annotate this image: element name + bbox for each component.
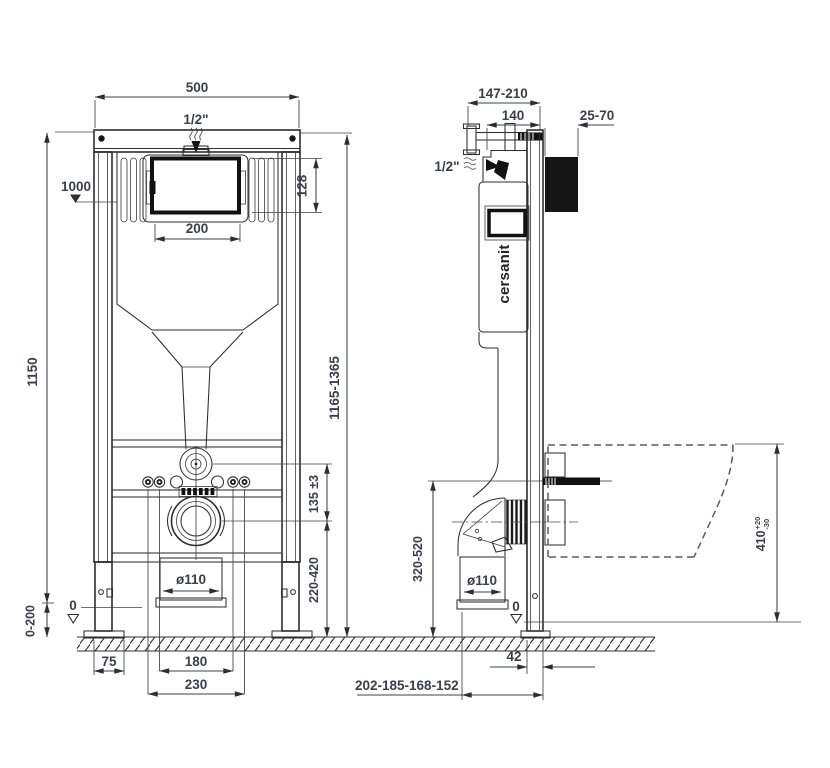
- dim-label-220-420: 220-420: [307, 557, 321, 603]
- inlet-label-front: 1/2": [183, 112, 208, 127]
- zero-label-side: 0: [512, 599, 520, 614]
- dim-outlet-height-320-520: 320-520: [411, 481, 543, 637]
- dim-outlet-dia-front: ø110: [163, 572, 219, 591]
- dim-label-135: 135 ±3: [307, 475, 321, 513]
- bolt-icon: [143, 477, 153, 487]
- dim-anchor-25-70: 25-70: [545, 108, 614, 156]
- dim-label-230: 230: [185, 677, 208, 692]
- toothed-bracket: [179, 487, 217, 497]
- corner-bolt-hole: [289, 135, 295, 141]
- dim-label-147-210: 147-210: [478, 86, 528, 101]
- cistern-side: cersanit: [473, 151, 529, 498]
- installation-frame-drawing: 500 1/2" 1000 128 200: [0, 0, 830, 768]
- dim-opening-128: 128: [252, 159, 322, 213]
- wall-bracket: [464, 124, 544, 155]
- flush-plate-opening: [143, 150, 248, 223]
- dim-label-180: 180: [185, 654, 208, 669]
- dim-label-dia110-side: ø110: [467, 573, 497, 588]
- bowl-height-value: 410: [754, 530, 768, 551]
- bolt-icon: [239, 477, 249, 487]
- floor-zero-side: 0: [511, 599, 801, 623]
- dim-label-500: 500: [186, 80, 209, 95]
- flush-pipe-funnel: [152, 332, 243, 449]
- inlet-marker-side: 1/2": [434, 158, 509, 180]
- brand-logo: cersanit: [496, 244, 513, 303]
- corner-bolt-hole: [98, 135, 104, 141]
- dim-bowl-height-410: 410+20-30: [735, 444, 784, 622]
- dim-label-1165-1365: 1165-1365: [327, 356, 342, 420]
- level-label-1000: 1000: [61, 179, 91, 194]
- bowl-height-tol-plus: +20: [753, 517, 762, 530]
- flow-arrow-icon: [192, 141, 201, 153]
- dim-label-1150: 1150: [25, 357, 40, 386]
- dim-label-410: 410+20-30: [753, 517, 771, 552]
- water-level-marker: 1000: [61, 179, 117, 203]
- toilet-bowl-outline: [548, 445, 733, 557]
- dim-outlet-height-220-420: 220-420: [307, 521, 327, 637]
- datum-triangle-icon: [511, 615, 522, 624]
- dim-label-25-70: 25-70: [580, 108, 615, 123]
- right-leg: [272, 562, 312, 638]
- datum-triangle-icon: [68, 615, 79, 624]
- dim-flush-outlet-135: 135 ±3: [213, 464, 332, 521]
- bowl-height-tol-minus: -30: [762, 519, 771, 530]
- dim-180: 180: [160, 654, 234, 671]
- dim-height-1150: 1150: [25, 132, 94, 603]
- dim-opening-200: 200: [155, 221, 240, 242]
- zero-label-front: 0: [69, 598, 77, 613]
- dim-label-140: 140: [502, 108, 525, 123]
- floor-zero-front: 0: [68, 598, 142, 623]
- side-view: cersanit 1/2": [355, 86, 801, 700]
- outlet-pipe-side: ø110: [457, 557, 508, 609]
- dim-label-202-185-168-152: 202-185-168-152: [355, 678, 459, 693]
- ground-slab: [77, 637, 655, 651]
- dim-label-42: 42: [506, 649, 521, 664]
- discharge-elbow: [458, 498, 527, 556]
- dim-label-200: 200: [186, 221, 209, 236]
- dim-label-0-200: 0-200: [24, 605, 38, 637]
- wall-anchor-block: [545, 157, 578, 212]
- dim-depth-140: 140: [487, 108, 540, 150]
- inlet-label-side: 1/2": [434, 159, 459, 174]
- technical-drawing-page: 500 1/2" 1000 128 200: [0, 0, 830, 768]
- bolt-icon: [154, 477, 164, 487]
- dim-label-320-520: 320-520: [411, 536, 425, 582]
- dim-legs-0-200: 0-200: [24, 603, 48, 637]
- bolt-icon: [228, 477, 238, 487]
- dim-label-128: 128: [295, 174, 310, 197]
- dim-label-75: 75: [101, 654, 117, 669]
- front-view: 500 1/2" 1000 128 200: [24, 80, 353, 694]
- inlet-marker-front: 1/2": [183, 112, 208, 153]
- dim-label-dia110-front: ø110: [176, 572, 206, 587]
- left-leg: [84, 562, 124, 638]
- cistern-front: [117, 150, 278, 450]
- dim-230: 230: [148, 677, 245, 694]
- fixing-rod: [543, 478, 612, 486]
